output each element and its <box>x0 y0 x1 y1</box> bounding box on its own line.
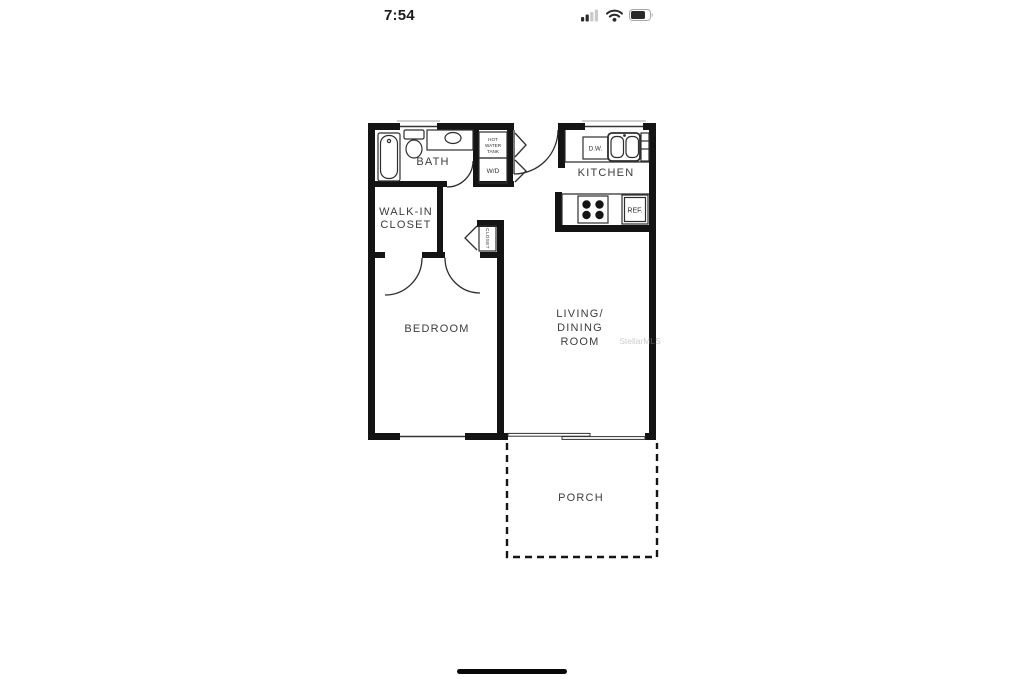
status-time: 7:54 <box>384 7 415 24</box>
window-sills <box>397 120 646 122</box>
hall-closet-label: CLOSET <box>485 228 490 249</box>
status-bar: 7:54 <box>342 0 682 32</box>
svg-text:HOT: HOT <box>488 137 498 142</box>
cellular-signal-icon <box>581 9 600 27</box>
battery-icon <box>629 9 654 27</box>
room-label-bath: BATH <box>416 156 449 168</box>
wifi-icon <box>606 9 623 27</box>
room-label-living-3: ROOM <box>560 336 599 348</box>
svg-text:D.W.: D.W. <box>589 146 603 153</box>
hot-water-tank: HOT WATER TANK <box>479 132 507 158</box>
room-label-living-2: DINING <box>557 322 603 334</box>
svg-text:TANK: TANK <box>487 149 500 154</box>
room-label-walk-in-closet-2: CLOSET <box>380 219 431 231</box>
hall-closet: CLOSET <box>479 226 496 251</box>
kitchen-sink <box>608 133 640 161</box>
svg-text:WATER: WATER <box>485 143 502 148</box>
room-label-porch: PORCH <box>558 492 604 504</box>
home-indicator[interactable] <box>457 669 567 674</box>
dishwasher: D.W. <box>583 137 608 159</box>
bathtub <box>378 133 400 181</box>
room-label-living-1: LIVING/ <box>556 308 604 320</box>
room-label-kitchen: KITCHEN <box>578 167 635 179</box>
svg-text:REF.: REF. <box>627 208 642 215</box>
svg-text:W/D: W/D <box>487 168 500 175</box>
refrigerator: REF. <box>622 195 648 224</box>
toilet <box>404 130 424 158</box>
room-label-bedroom: BEDROOM <box>404 323 469 335</box>
status-icons <box>581 9 654 27</box>
watermark: StellarMLS <box>619 336 661 346</box>
washer-dryer: W/D <box>479 158 507 183</box>
room-label-walk-in-closet-1: WALK-IN <box>379 206 433 218</box>
floor-plan-image: HOT WATER TANK W/D D.W. REF. <box>340 105 690 570</box>
kitchen-tall-cabinet <box>641 133 649 161</box>
bathroom-sink <box>427 130 473 150</box>
stove <box>578 196 608 223</box>
sliding-door <box>508 433 645 439</box>
